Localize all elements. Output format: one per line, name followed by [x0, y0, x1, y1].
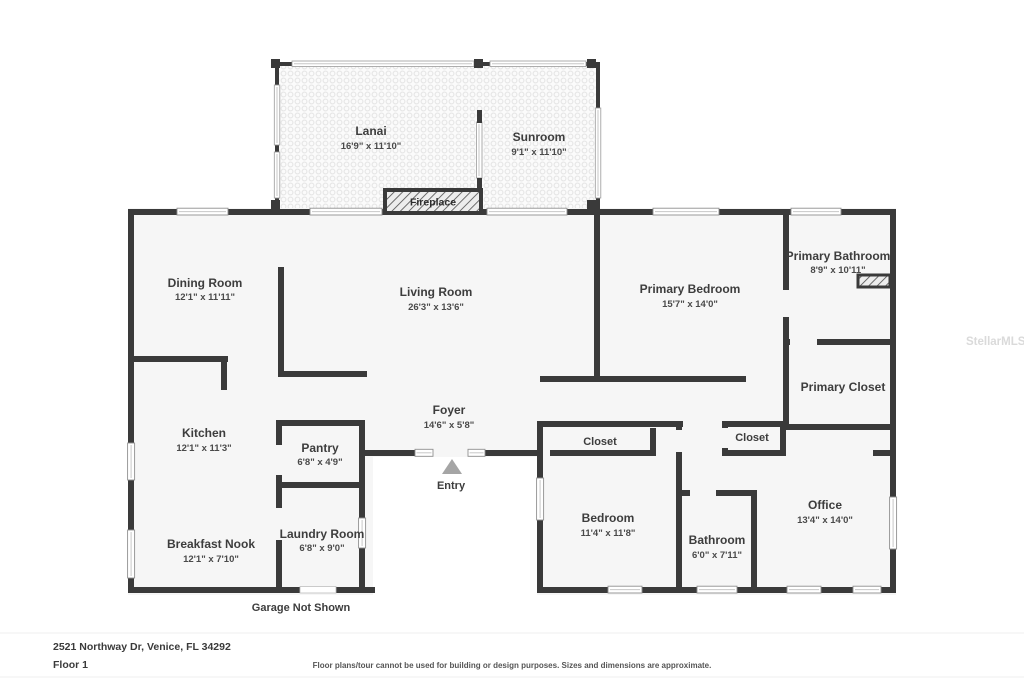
room-name: Laundry Room — [280, 527, 365, 541]
room-name: Dining Room — [168, 276, 243, 290]
window — [787, 586, 821, 593]
room-name: Foyer — [433, 403, 466, 417]
window — [890, 497, 897, 549]
room-name: Kitchen — [182, 426, 226, 440]
room-name: Bathroom — [689, 533, 746, 547]
room-name: Office — [808, 498, 842, 512]
room-dims: 26'3" x 13'6" — [408, 302, 464, 313]
room-name: Primary Bathroom — [786, 249, 891, 263]
slider-door — [487, 208, 567, 215]
window — [128, 443, 135, 480]
slider-door — [310, 208, 382, 215]
watermark: StellarMLS — [966, 336, 1024, 348]
room-name: Primary Closet — [801, 380, 886, 394]
floor-label: Floor 1 — [53, 659, 88, 671]
entry-marker: Entry — [437, 459, 466, 492]
disclaimer-text: Floor plans/tour cannot be used for buil… — [313, 661, 712, 670]
room-name: Closet — [735, 432, 769, 444]
floor-plan-canvas: Fireplace Entry Lanai 16'9" x 11'10" Sun… — [0, 0, 1024, 682]
room-dims: 16'9" x 11'10" — [341, 141, 402, 152]
main-floor-left — [128, 355, 373, 595]
room-dims: 15'7" x 14'0" — [662, 299, 718, 310]
room-name: Primary Bedroom — [640, 282, 741, 296]
entry-arrow-icon — [442, 459, 462, 474]
room-dining: Dining Room 12'1" x 11'11" — [168, 276, 243, 303]
room-dims: 6'0" x 7'11" — [692, 550, 742, 561]
window — [415, 449, 433, 456]
entry-label: Entry — [437, 480, 466, 492]
room-name: Lanai — [355, 124, 386, 138]
room-name: Pantry — [301, 441, 339, 455]
fireplace: Fireplace — [385, 190, 481, 213]
room-dims: 12'1" x 11'11" — [175, 292, 235, 303]
room-dims: 6'8" x 9'0" — [299, 543, 344, 554]
room-dims: 12'1" x 7'10" — [183, 554, 239, 565]
room-name: Breakfast Nook — [167, 537, 255, 551]
garage-door-gap — [300, 587, 336, 594]
fireplace-label: Fireplace — [410, 197, 456, 209]
floor-plan-page: Fireplace Entry Lanai 16'9" x 11'10" Sun… — [0, 0, 1024, 682]
room-name: Sunroom — [513, 130, 566, 144]
window — [177, 208, 228, 215]
room-pantry: Pantry 6'8" x 4'9" — [297, 441, 342, 468]
window — [608, 586, 642, 593]
window — [653, 208, 719, 215]
window — [468, 449, 485, 456]
room-closet-bedroom: Closet — [583, 436, 617, 448]
room-name: Living Room — [400, 285, 473, 299]
room-dims: 6'8" x 4'9" — [297, 457, 342, 468]
window — [791, 208, 841, 215]
garage-note: Garage Not Shown — [252, 602, 351, 614]
room-closet-hall: Closet — [735, 432, 769, 444]
room-dims: 14'6" x 5'8" — [424, 420, 475, 431]
main-floor-primary — [782, 208, 896, 433]
window — [853, 586, 881, 593]
bathroom-fixture — [858, 275, 890, 287]
window — [697, 586, 737, 593]
room-primary-closet: Primary Closet — [801, 380, 886, 394]
room-dims: 13'4" x 14'0" — [797, 515, 853, 526]
room-name: Closet — [583, 436, 617, 448]
room-dims: 11'4" x 11'8" — [581, 528, 636, 539]
window — [537, 478, 544, 520]
room-name: Bedroom — [582, 511, 635, 525]
window — [128, 530, 135, 578]
room-dims: 12'1" x 11'3" — [176, 443, 231, 454]
room-dims: 9'1" x 11'10" — [511, 147, 566, 158]
address-text: 2521 Northway Dr, Venice, FL 34292 — [53, 641, 231, 653]
room-dims: 8'9" x 10'11" — [810, 265, 865, 276]
